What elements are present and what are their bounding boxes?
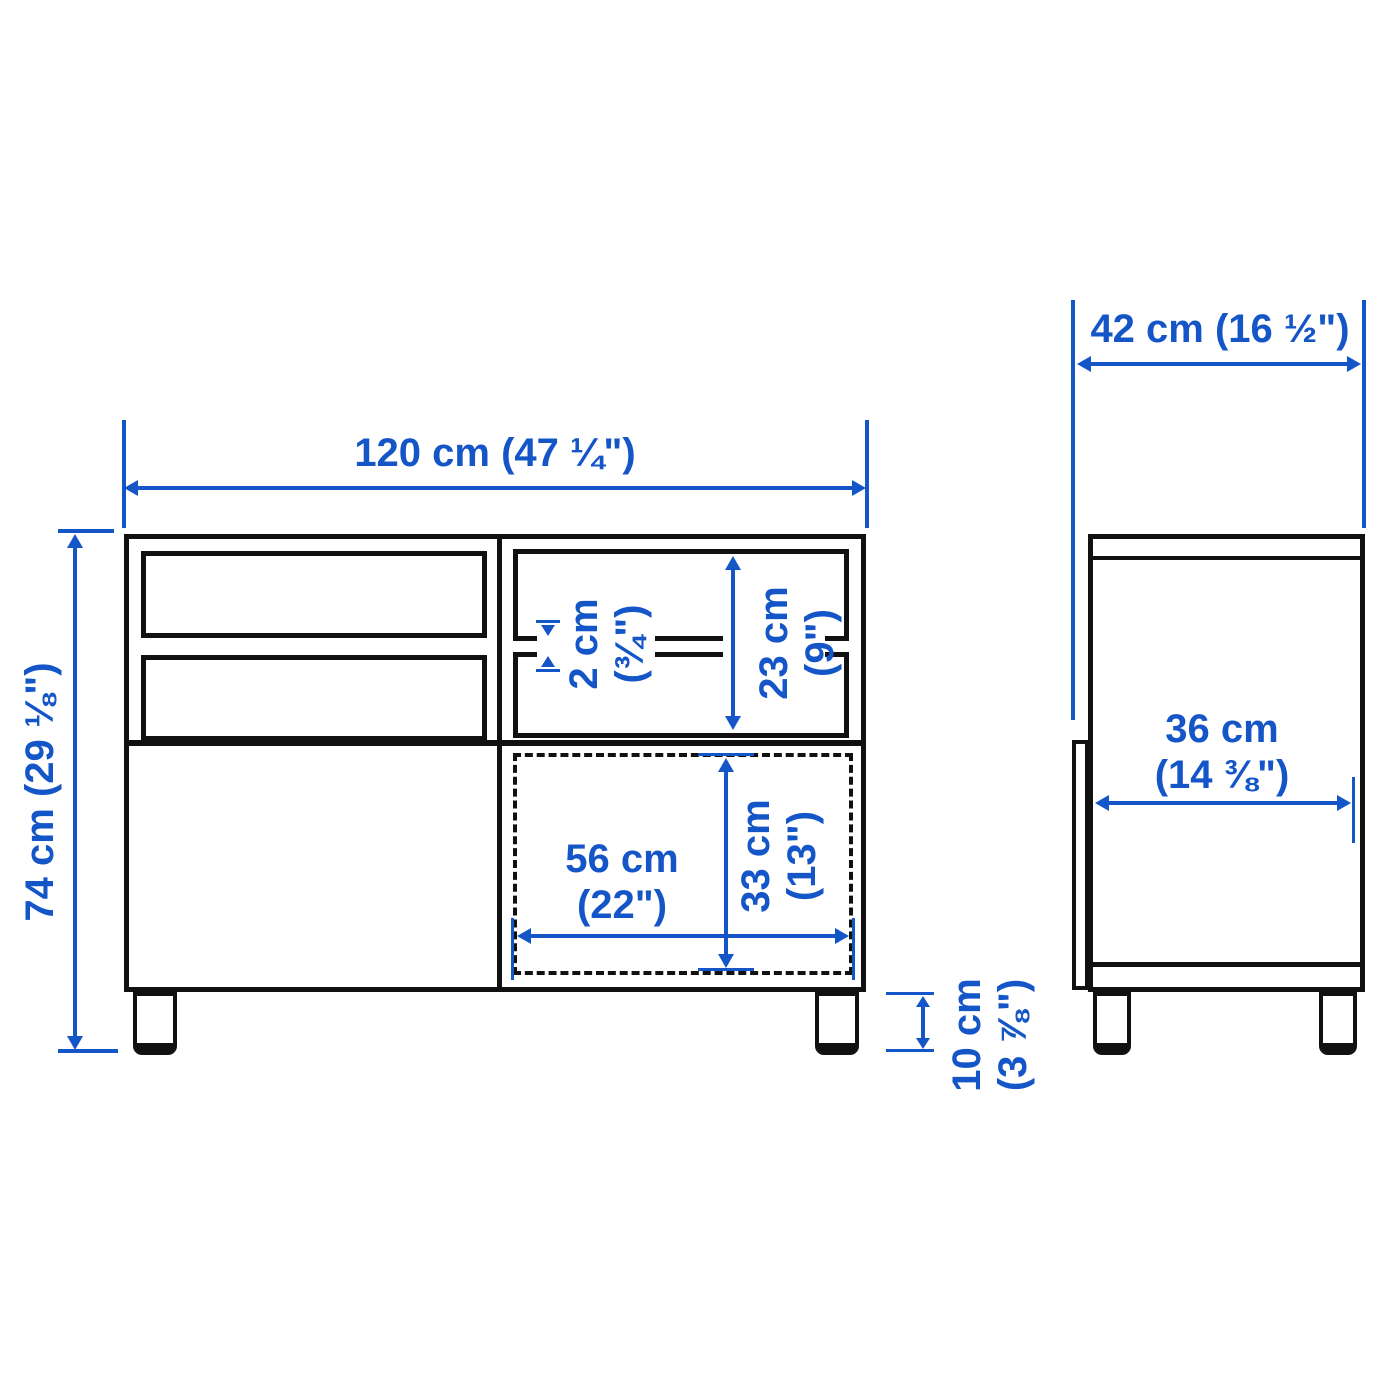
front-height-dimension-arrow bbox=[73, 546, 77, 1038]
opening-height-label: 33 cm (13") bbox=[733, 766, 825, 946]
arrowhead-down-icon bbox=[541, 625, 555, 636]
compartment-frame-bottom bbox=[513, 733, 849, 738]
arrowhead-right-icon bbox=[852, 480, 866, 496]
arrowhead-down-icon bbox=[718, 954, 734, 968]
compartment-height-cm: 23 cm bbox=[751, 553, 797, 733]
compartment-frame-left-lower bbox=[513, 652, 518, 738]
furniture-dimension-diagram: 120 cm (47 ¼") 74 cm (29 ⅛") bbox=[0, 0, 1400, 1400]
opening-width-ext-left bbox=[511, 918, 514, 980]
shelf-line-top bbox=[655, 636, 723, 641]
arrowhead-down-icon bbox=[725, 716, 741, 730]
arrowhead-up-icon bbox=[916, 996, 930, 1007]
arrowhead-down-icon bbox=[67, 1036, 83, 1050]
inner-depth-in: (14 ⅜") bbox=[1097, 752, 1347, 798]
leg-height-arrow bbox=[921, 1005, 925, 1041]
opening-width-label: 56 cm (22") bbox=[512, 836, 732, 928]
extension-line-left bbox=[122, 420, 126, 528]
opening-height-arrow bbox=[724, 772, 728, 956]
inner-depth-label: 36 cm (14 ⅜") bbox=[1097, 706, 1347, 798]
arrowhead-up-icon bbox=[725, 556, 741, 570]
side-bottom-edge-line bbox=[1088, 962, 1365, 967]
arrowhead-down-icon bbox=[916, 1038, 930, 1049]
shelf-thickness-label: 2 cm (¾") bbox=[561, 574, 653, 714]
compartment-height-arrow bbox=[731, 568, 735, 718]
leg-foot bbox=[1322, 1043, 1354, 1052]
arrowhead-up-icon bbox=[67, 534, 83, 548]
compartment-height-in: (9") bbox=[797, 553, 843, 733]
compartment-frame-left-upper-foot bbox=[513, 636, 537, 641]
drawer-opening-top bbox=[141, 551, 487, 638]
arrowhead-up-icon bbox=[718, 758, 734, 772]
height-tick-top bbox=[58, 529, 114, 533]
drawer-opening-bottom bbox=[141, 655, 487, 741]
opening-height-tick-top bbox=[698, 753, 754, 756]
inner-depth-arrow bbox=[1109, 801, 1337, 805]
arrowhead-left-icon bbox=[124, 480, 138, 496]
leg-foot bbox=[818, 1043, 856, 1052]
leg-height-label: 10 cm (3 ⅞") bbox=[944, 935, 1036, 1135]
side-leg-front bbox=[1093, 992, 1131, 1055]
opening-width-cm: 56 cm bbox=[512, 836, 732, 882]
leg-height-in: (3 ⅞") bbox=[990, 935, 1036, 1135]
arrowhead-up-icon bbox=[541, 656, 555, 667]
front-width-dimension-label: 120 cm (47 ¼") bbox=[124, 430, 866, 476]
arrowhead-left-icon bbox=[1077, 356, 1091, 372]
front-width-dimension-arrow bbox=[138, 486, 852, 490]
shelf-thickness-tick-top bbox=[536, 620, 560, 623]
compartment-frame-right-upper bbox=[844, 549, 849, 641]
inner-depth-ext-right bbox=[1352, 777, 1355, 843]
arrowhead-left-icon bbox=[517, 928, 531, 944]
shelf-thickness-in: (¾") bbox=[607, 574, 653, 714]
opening-width-ext-right bbox=[852, 918, 855, 980]
front-leg-right bbox=[815, 992, 859, 1055]
side-leg-back bbox=[1319, 992, 1357, 1055]
side-depth-arrow bbox=[1091, 362, 1347, 366]
arrowhead-right-icon bbox=[1337, 795, 1351, 811]
leg-height-tick-bottom bbox=[886, 1049, 934, 1052]
compartment-height-label: 23 cm (9") bbox=[751, 553, 843, 733]
compartment-frame-left-upper bbox=[513, 549, 518, 641]
opening-height-in: (13") bbox=[779, 766, 825, 946]
leg-height-tick-top bbox=[886, 992, 934, 995]
extension-line-right bbox=[865, 420, 869, 528]
opening-height-tick-bottom bbox=[698, 968, 754, 971]
compartment-frame-right-lower bbox=[844, 652, 849, 738]
shelf-thickness-tick-bottom bbox=[536, 669, 560, 672]
leg-height-cm: 10 cm bbox=[944, 935, 990, 1135]
shelf-thickness-cm: 2 cm bbox=[561, 574, 607, 714]
depth-ext-left bbox=[1071, 300, 1075, 720]
opening-width-in: (22") bbox=[512, 882, 732, 928]
arrowhead-left-icon bbox=[1095, 795, 1109, 811]
shelf-line-bottom bbox=[655, 652, 723, 657]
opening-height-cm: 33 cm bbox=[733, 766, 779, 946]
side-top-edge-line bbox=[1088, 556, 1365, 560]
depth-ext-right bbox=[1362, 300, 1366, 528]
leg-foot bbox=[136, 1043, 174, 1052]
front-leg-left bbox=[133, 992, 177, 1055]
center-divider bbox=[497, 534, 502, 992]
arrowhead-right-icon bbox=[1347, 356, 1361, 372]
compartment-frame-left-lower-foot bbox=[513, 652, 537, 657]
leg-foot bbox=[1096, 1043, 1128, 1052]
side-depth-label: 42 cm (16 ½") bbox=[1072, 306, 1368, 352]
arrowhead-right-icon bbox=[835, 928, 849, 944]
inner-depth-cm: 36 cm bbox=[1097, 706, 1347, 752]
front-height-dimension-label: 74 cm (29 ⅛") bbox=[17, 592, 63, 992]
side-door-panel bbox=[1072, 740, 1089, 990]
